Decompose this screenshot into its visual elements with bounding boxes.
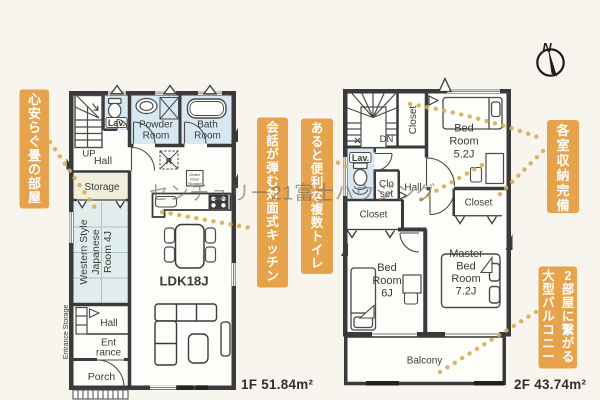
svg-text:と: と (311, 149, 324, 163)
svg-text:Room: Room (449, 136, 478, 148)
svg-text:が: が (562, 336, 575, 351)
svg-text:が: が (266, 147, 279, 162)
svg-text:畳: 畳 (28, 148, 41, 163)
svg-text:Room: Room (372, 275, 401, 287)
svg-text:DN: DN (380, 134, 394, 145)
svg-text:ル: ル (542, 310, 555, 324)
svg-text:Storage: Storage (84, 182, 119, 193)
svg-text:Room: Room (451, 273, 480, 285)
svg-text:便: 便 (311, 161, 324, 176)
svg-text:バ: バ (542, 296, 555, 310)
svg-text:型: 型 (542, 282, 555, 297)
svg-text:7.2J: 7.2J (456, 286, 477, 298)
svg-text:センチュリー21富士ハウジング: センチュリー21富士ハウジング (149, 183, 436, 205)
svg-text:ト: ト (311, 230, 324, 244)
svg-text:Room: Room (194, 131, 221, 142)
svg-text:R: R (166, 156, 172, 166)
svg-text:収: 収 (556, 153, 570, 168)
svg-text:Room: Room (143, 131, 170, 142)
svg-text:心: 心 (28, 92, 41, 107)
svg-text:チ: チ (266, 256, 279, 270)
svg-text:Porch: Porch (88, 371, 116, 383)
svg-text:1F 51.84m²: 1F 51.84m² (241, 377, 313, 392)
svg-text:あ: あ (311, 122, 324, 136)
svg-text:室: 室 (556, 138, 569, 153)
svg-text:弾: 弾 (266, 160, 279, 175)
svg-text:Hall: Hall (94, 155, 112, 167)
svg-text:数: 数 (310, 215, 324, 230)
svg-text:部: 部 (562, 282, 575, 297)
svg-text:繋: 繋 (562, 322, 575, 337)
svg-text:に: に (562, 310, 575, 324)
svg-text:ら: ら (28, 120, 41, 135)
svg-text:Room 4J: Room 4J (102, 231, 114, 273)
svg-text:2F 43.74m²: 2F 43.74m² (514, 377, 586, 392)
svg-text:る: る (562, 350, 575, 364)
svg-text:N: N (542, 40, 552, 55)
svg-text:ー: ー (542, 350, 555, 364)
svg-text:式: 式 (266, 214, 279, 229)
svg-text:Entrance Storage: Entrance Storage (63, 305, 70, 360)
svg-text:安: 安 (28, 106, 41, 121)
svg-text:Master: Master (449, 248, 483, 260)
svg-text:ッ: ッ (266, 242, 279, 256)
svg-text:Bed: Bed (456, 261, 476, 273)
svg-text:Closet: Closet (465, 198, 493, 209)
svg-text:ぐ: ぐ (28, 134, 41, 149)
svg-text:Japanese: Japanese (90, 229, 102, 275)
svg-text:レ: レ (311, 257, 324, 271)
svg-text:話: 話 (266, 133, 279, 148)
svg-text:る: る (311, 135, 324, 149)
svg-text:屋: 屋 (28, 190, 41, 205)
svg-text:イ: イ (311, 243, 324, 257)
svg-text:LDK18J: LDK18J (160, 274, 209, 289)
svg-text:納: 納 (556, 168, 569, 183)
svg-text:ン: ン (266, 269, 279, 283)
svg-text:Closet: Closet (408, 106, 419, 135)
svg-text:Balcony: Balcony (407, 356, 443, 367)
svg-text:Closet: Closet (360, 210, 388, 221)
svg-text:コ: コ (542, 323, 555, 337)
svg-text:6J: 6J (381, 288, 393, 300)
svg-text:Western Style: Western Style (78, 219, 90, 284)
svg-text:備: 備 (556, 198, 569, 213)
svg-text:Hall: Hall (100, 318, 117, 329)
svg-text:部: 部 (28, 176, 41, 191)
svg-text:Bed: Bed (454, 123, 474, 135)
svg-text:キ: キ (266, 229, 279, 243)
svg-text:完: 完 (556, 183, 569, 198)
svg-text:ニ: ニ (542, 337, 555, 351)
svg-text:rance: rance (96, 348, 121, 359)
svg-text:Lav.: Lav. (352, 153, 369, 163)
svg-text:2: 2 (565, 269, 572, 283)
svg-text:5.2J: 5.2J (454, 149, 475, 161)
svg-text:各: 各 (555, 123, 570, 138)
svg-text:大: 大 (542, 268, 555, 283)
svg-text:Bed: Bed (377, 262, 397, 274)
svg-text:の: の (28, 162, 41, 177)
svg-text:屋: 屋 (562, 295, 575, 310)
svg-text:会: 会 (266, 120, 279, 135)
